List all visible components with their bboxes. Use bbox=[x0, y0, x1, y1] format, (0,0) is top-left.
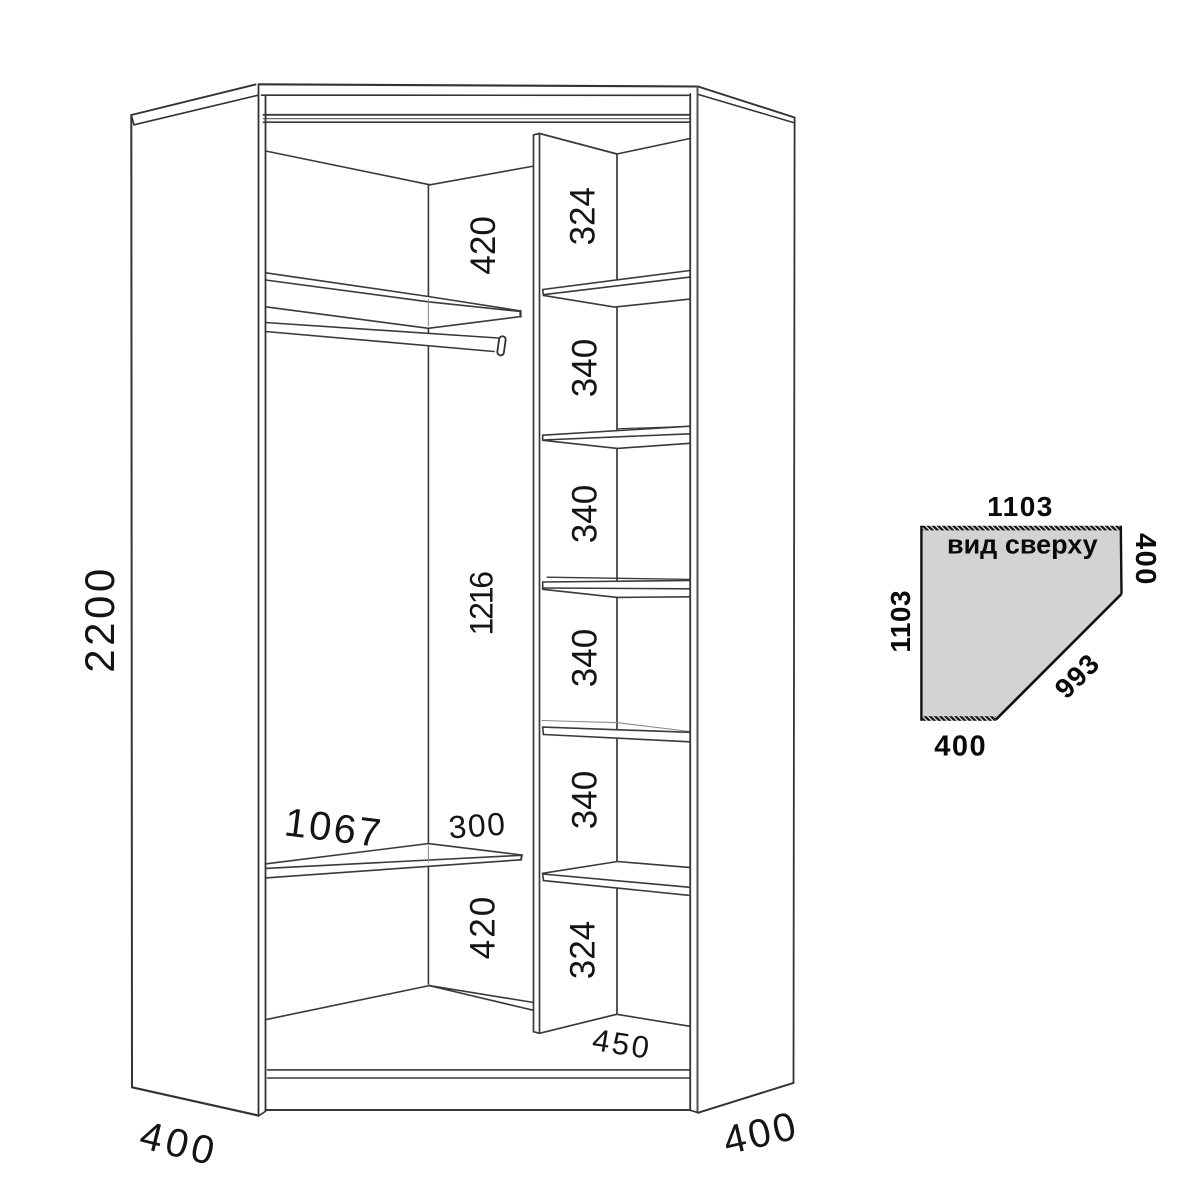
svg-text:324: 324 bbox=[564, 921, 603, 979]
svg-text:420: 420 bbox=[463, 895, 502, 959]
svg-text:400: 400 bbox=[1129, 533, 1161, 586]
svg-text:1103: 1103 bbox=[987, 491, 1054, 522]
svg-text:324: 324 bbox=[564, 187, 603, 245]
svg-text:1216: 1216 bbox=[463, 572, 499, 636]
svg-text:340: 340 bbox=[566, 629, 605, 687]
svg-text:340: 340 bbox=[566, 771, 605, 829]
svg-text:420: 420 bbox=[464, 216, 503, 274]
svg-text:2200: 2200 bbox=[76, 565, 123, 672]
svg-text:340: 340 bbox=[566, 485, 605, 543]
svg-text:400: 400 bbox=[934, 731, 987, 763]
svg-text:340: 340 bbox=[566, 339, 605, 397]
svg-text:1103: 1103 bbox=[885, 590, 916, 653]
svg-text:300: 300 bbox=[447, 806, 507, 846]
svg-text:вид сверху: вид сверху bbox=[947, 529, 1098, 559]
